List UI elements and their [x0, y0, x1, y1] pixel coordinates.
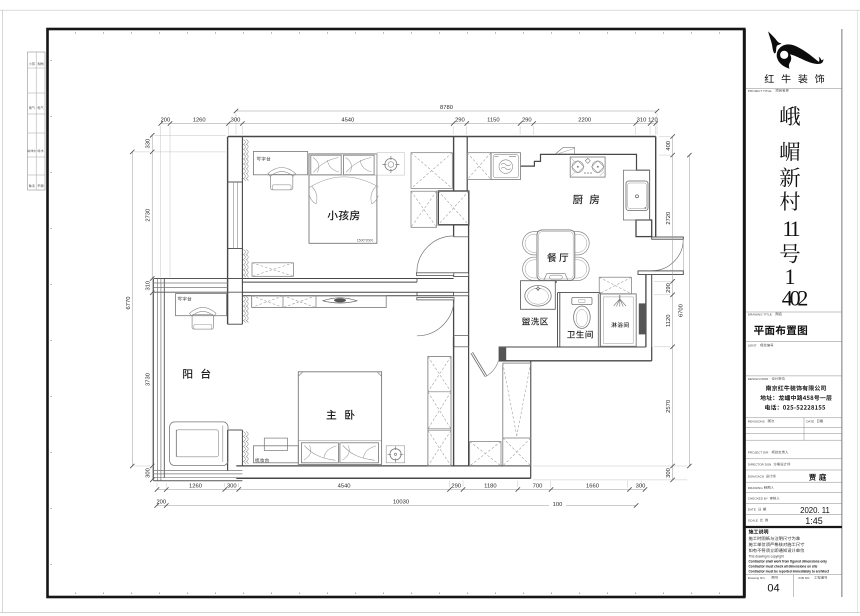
svg-text:290: 290: [522, 117, 532, 123]
svg-text:1660: 1660: [586, 483, 599, 489]
svg-text:2570: 2570: [666, 400, 672, 413]
svg-text:300: 300: [666, 468, 672, 478]
svg-text:300: 300: [636, 483, 646, 489]
svg-text:310: 310: [146, 281, 152, 291]
svg-text:Contractor shall work from fig: Contractor shall work from figured dimen…: [749, 560, 828, 564]
svg-text:1120: 1120: [666, 315, 672, 327]
svg-text:4540: 4540: [338, 483, 351, 489]
svg-text:310: 310: [637, 117, 647, 123]
svg-text:Drawing NO.: Drawing NO.: [748, 576, 766, 580]
svg-text:2200: 2200: [578, 117, 591, 123]
svg-text:700: 700: [533, 483, 543, 489]
svg-text:402: 402: [782, 286, 808, 311]
svg-text:330: 330: [146, 139, 152, 149]
svg-text:04: 04: [767, 583, 779, 595]
svg-text:DIRECTOR DSN: DIRECTOR DSN: [748, 463, 772, 467]
svg-text:100: 100: [553, 502, 563, 508]
svg-text:1150: 1150: [487, 117, 499, 123]
svg-text:120: 120: [648, 117, 658, 123]
svg-text:3730: 3730: [146, 373, 152, 386]
svg-text:200: 200: [156, 499, 166, 505]
svg-text:290: 290: [455, 117, 465, 123]
svg-text:400: 400: [666, 141, 672, 151]
svg-text:300: 300: [231, 117, 241, 123]
svg-text:200: 200: [161, 117, 171, 123]
svg-text:DATE: DATE: [748, 508, 756, 512]
svg-text:Contractor must check all dime: Contractor must check all dimensions on …: [749, 565, 818, 569]
svg-text:REVISIONS: REVISIONS: [748, 419, 765, 423]
svg-text:11: 11: [782, 216, 799, 241]
svg-text:6700: 6700: [679, 304, 685, 317]
svg-text:1260: 1260: [193, 117, 206, 123]
svg-text:CHECKED BY: CHECKED BY: [748, 497, 768, 501]
svg-text:8780: 8780: [440, 105, 453, 111]
svg-text:SCALE: SCALE: [748, 519, 758, 523]
svg-text:LIENT: LIENT: [748, 344, 757, 348]
svg-text:300: 300: [227, 483, 237, 489]
svg-text:1:45: 1:45: [805, 516, 823, 526]
svg-text:10030: 10030: [393, 499, 409, 505]
svg-text:290: 290: [451, 483, 461, 489]
svg-text:2020. 11: 2020. 11: [800, 506, 830, 515]
svg-text:4540: 4540: [341, 117, 354, 123]
svg-text:1260: 1260: [189, 483, 202, 489]
svg-text:PROJECT TITLE: PROJECT TITLE: [748, 89, 772, 93]
svg-text:2730: 2730: [146, 209, 152, 222]
svg-text:1500*2000: 1500*2000: [357, 239, 374, 243]
svg-text:DSN/GACN: DSN/GACN: [748, 475, 764, 479]
svg-text:DRAWING TITLE: DRAWING TITLE: [748, 312, 772, 316]
svg-text:DATE: DATE: [806, 419, 814, 423]
svg-text:JOB NO.: JOB NO.: [798, 576, 811, 580]
svg-text:Contractor must be reported im: Contractor must be reported immediately …: [749, 570, 831, 574]
svg-text:This drawing is copyright: This drawing is copyright: [749, 554, 784, 558]
svg-text:1180: 1180: [484, 483, 496, 489]
svg-text:290: 290: [666, 283, 672, 293]
svg-text:DRAWING: DRAWING: [748, 486, 763, 490]
svg-text:6770: 6770: [126, 297, 132, 310]
svg-text:PROJECT DIR: PROJECT DIR: [748, 451, 769, 455]
svg-text:2720: 2720: [666, 212, 672, 225]
svg-text:DESIGN FIRM: DESIGN FIRM: [748, 377, 769, 381]
svg-text:300: 300: [146, 468, 152, 478]
